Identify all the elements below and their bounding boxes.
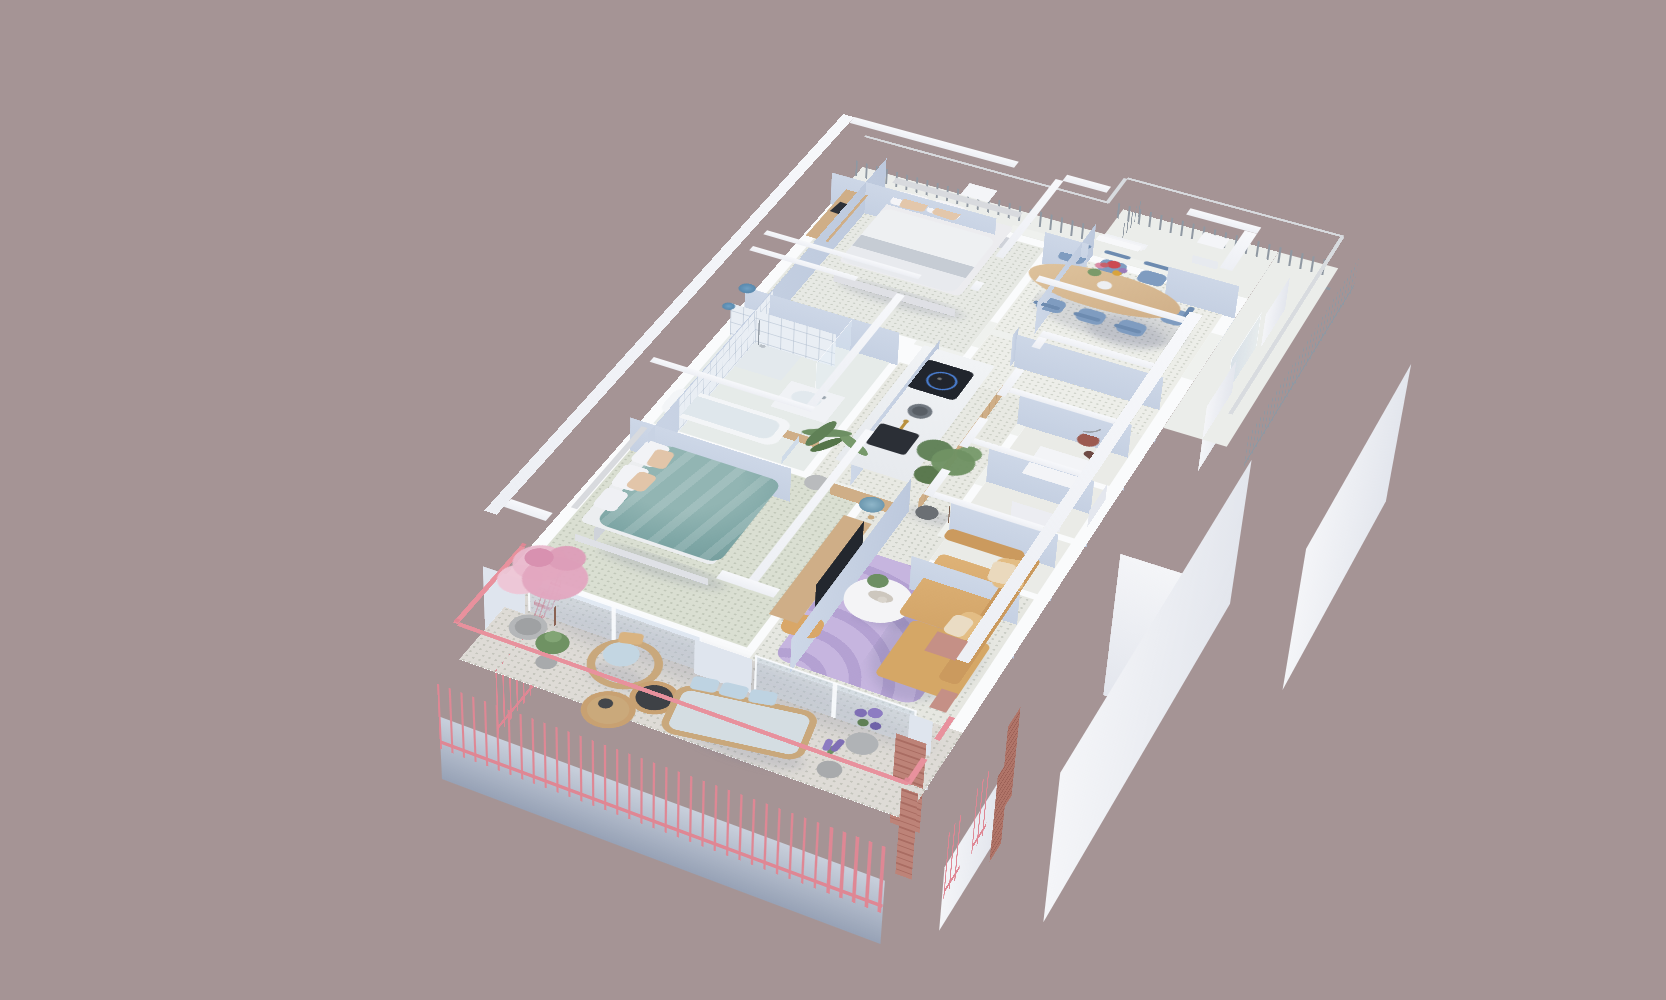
wall-cap bbox=[849, 117, 1019, 168]
gray-handrail bbox=[1105, 178, 1127, 204]
wall-cap bbox=[504, 499, 553, 521]
render-stage bbox=[0, 0, 1666, 1000]
balcony-face-e bbox=[1283, 364, 1412, 690]
